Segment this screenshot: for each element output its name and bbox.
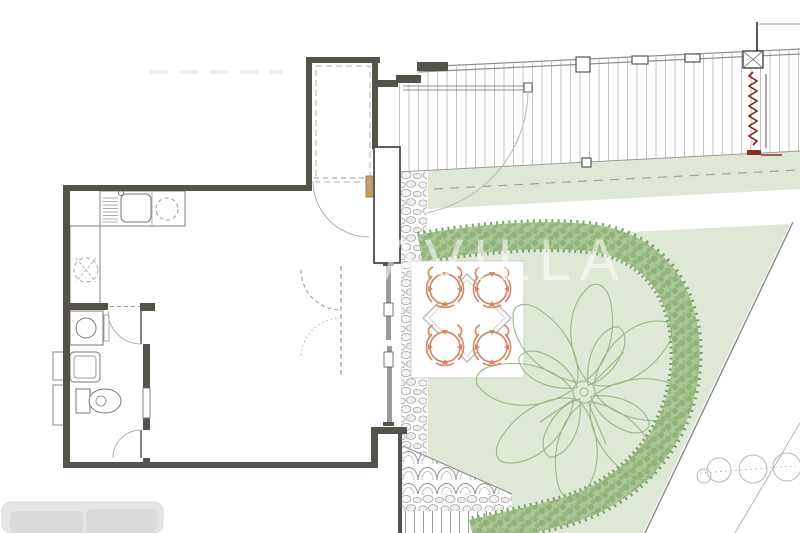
floorplan-svg: LAVILLA <box>0 0 800 533</box>
toilet <box>76 389 121 413</box>
wall-interior-3 <box>143 458 150 466</box>
wall-step-stub <box>371 427 407 434</box>
pebble-strip-bottom <box>400 494 512 511</box>
wall-left <box>63 185 70 468</box>
wall-corner-post <box>140 303 155 311</box>
floorplan-canvas: LAVILLA <box>0 0 800 533</box>
deck-step-wall-2 <box>417 62 448 71</box>
kitchen-sink <box>121 194 151 222</box>
wall-interior-1 <box>143 344 150 388</box>
porch-wall-left <box>306 57 312 191</box>
wall-bottom <box>70 462 378 468</box>
wall-garden-edge <box>398 434 402 533</box>
porch-wall-top <box>306 57 380 63</box>
watermark-text: LAVILLA <box>340 228 628 293</box>
bathroom-wall-top <box>63 303 108 310</box>
kitchen-counter <box>100 191 185 227</box>
washing-machine <box>70 311 103 345</box>
porch-wall-right <box>372 57 378 149</box>
sofa-cushion <box>86 509 157 533</box>
slider-handle <box>384 352 393 367</box>
left-counter <box>70 226 100 305</box>
slider-handle <box>384 303 393 316</box>
deck-step-wall <box>396 75 421 83</box>
sofa-cushion <box>10 511 83 533</box>
sofa <box>2 502 163 533</box>
wall-top <box>63 185 312 191</box>
porch-deck-stub <box>374 80 398 87</box>
wall-interior-2 <box>143 418 150 430</box>
interior-glazing <box>143 388 150 418</box>
wall-step-connector <box>371 434 378 468</box>
